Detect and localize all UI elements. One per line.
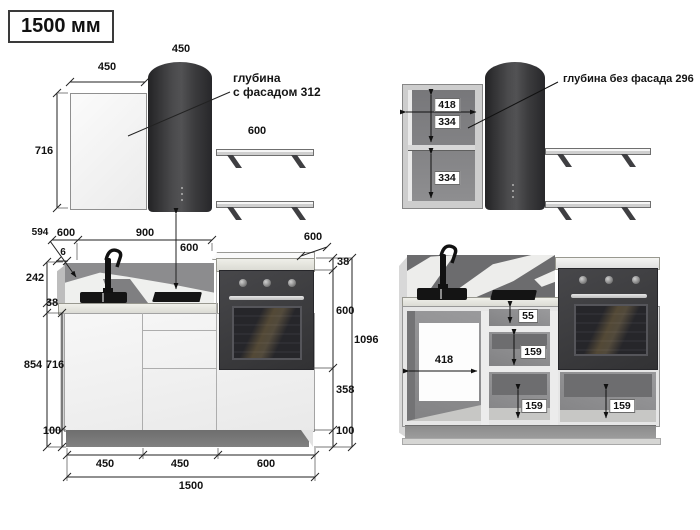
left-hood-cylinder <box>148 62 212 212</box>
drawer-back <box>492 374 547 395</box>
sink-divider <box>440 289 442 299</box>
dim-overhang-6: 6 <box>60 247 66 258</box>
oven-knob <box>288 279 296 287</box>
dim-opening-418: 418 <box>435 355 453 366</box>
dim-carcass-716: 716 <box>46 360 64 371</box>
right-plinth-base <box>402 438 661 445</box>
dim-wall-width-418: 418 <box>434 98 460 112</box>
left-plinth <box>66 430 309 447</box>
oven-handle <box>229 296 304 300</box>
right-shelf-top <box>545 148 651 155</box>
drawer-gap-top <box>142 330 216 331</box>
dim-shelf-width: 600 <box>248 126 266 137</box>
right-hood-cylinder <box>485 62 545 210</box>
wall-cabinet-shelf <box>408 145 475 151</box>
scale-label: 1500 мм <box>8 10 114 43</box>
dim-hood-width: 450 <box>172 44 190 55</box>
dim-oven-drawer-159: 159 <box>609 399 635 413</box>
oven-knob <box>579 276 587 284</box>
oven-knob <box>263 279 271 287</box>
oven-knob <box>605 276 613 284</box>
oven-knob <box>239 279 247 287</box>
dim-drawer-159-bottom: 159 <box>521 399 547 413</box>
oven-window <box>232 306 302 360</box>
dim-bottom-450b: 450 <box>171 459 189 470</box>
left-cooktop <box>152 292 202 302</box>
base-opening-418 <box>407 311 481 421</box>
dim-bottom-450a: 450 <box>96 459 114 470</box>
sink-divider <box>102 293 104 302</box>
right-shelf-bottom <box>545 201 651 208</box>
dim-drawer-55: 55 <box>518 309 538 323</box>
hood-control-lights <box>512 184 514 200</box>
hood-control-lights <box>181 187 183 203</box>
left-shelf-top <box>216 149 314 156</box>
dim-tower-plinth-100: 100 <box>336 426 354 437</box>
drawer-gap-mid <box>142 368 216 369</box>
opening-side-dark <box>407 311 415 421</box>
door-gap-2 <box>216 270 217 430</box>
dim-tower-depth-600: 600 <box>304 232 322 243</box>
rail <box>550 311 558 425</box>
oven-window <box>574 304 648 356</box>
dim-splash-height-242: 242 <box>26 273 44 284</box>
drawer-column-rail <box>481 311 489 425</box>
left-wall-panel <box>70 93 147 210</box>
annotation-with-front: глубина с фасадом 312 <box>233 71 321 99</box>
dim-wall-gap-334b: 334 <box>434 171 460 185</box>
dim-drawer-159-mid: 159 <box>520 345 546 359</box>
dim-worktop-depth-594: 594 <box>32 227 49 238</box>
right-oven <box>558 268 658 370</box>
dim-total-1500: 1500 <box>179 481 203 492</box>
opening-floor <box>407 405 481 421</box>
dim-plinth-100: 100 <box>43 426 61 437</box>
right-sink <box>417 288 467 300</box>
right-cooktop <box>490 290 537 300</box>
dim-tower-drawer-358: 358 <box>336 385 354 396</box>
oven-handle <box>571 294 647 298</box>
left-shelf-bottom <box>216 201 314 208</box>
dim-base-total-854: 854 <box>24 360 42 371</box>
left-sink <box>80 292 127 303</box>
dim-panel-width: 450 <box>98 62 116 73</box>
dim-worktop-thickness-38: 38 <box>46 298 58 309</box>
dim-hob-span-900: 900 <box>136 228 154 239</box>
kitchen-drawing-canvas: 1500 мм <box>0 0 700 530</box>
drawer-floor <box>560 410 656 422</box>
annotation-line1: глубина <box>233 71 281 85</box>
dim-bottom-600: 600 <box>257 459 275 470</box>
dim-panel-height: 716 <box>35 146 53 157</box>
oven-knob <box>632 276 640 284</box>
right-plinth <box>405 425 656 439</box>
dim-tower-height-1096: 1096 <box>354 335 378 346</box>
annotation-without-front: глубина без фасада 296 <box>563 72 694 86</box>
dim-wall-gap-334a: 334 <box>434 115 460 129</box>
dim-tower-top-38: 38 <box>337 257 349 268</box>
left-base-side <box>60 313 64 430</box>
drawer-back <box>564 374 652 397</box>
annotation-line2: с фасадом 312 <box>233 85 321 99</box>
dim-hood-clearance-600: 600 <box>180 243 198 254</box>
dim-oven-height-600: 600 <box>336 306 354 317</box>
left-oven <box>219 270 314 370</box>
oven-drawer-opening <box>560 372 656 422</box>
dim-worktop-depth-600: 600 <box>57 228 75 239</box>
